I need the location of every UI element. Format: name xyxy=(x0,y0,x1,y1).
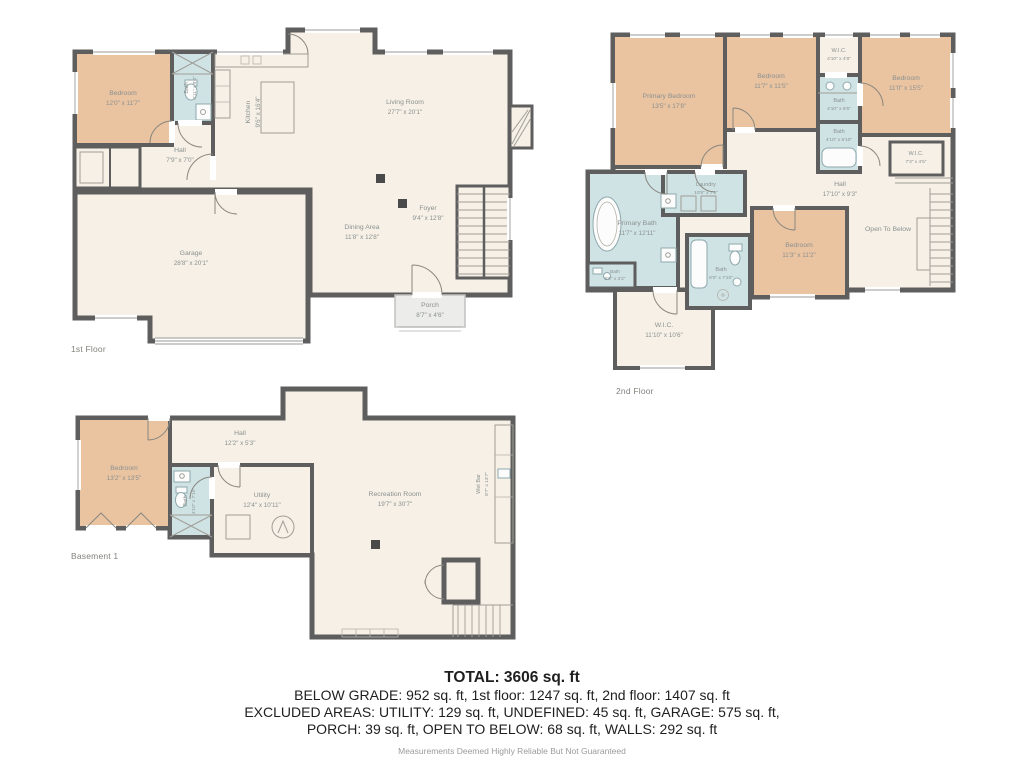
room-dims: 9'4" x 12'8" xyxy=(412,215,443,222)
room-dims: 11'7" x 12'11" xyxy=(618,230,655,237)
room-bath-small-second xyxy=(588,263,635,288)
room-dims: 5'6" x 3'2" xyxy=(605,276,626,282)
room-dims: 12'2" x 5'3" xyxy=(224,440,255,447)
room-label: W.I.C. xyxy=(655,322,674,329)
room-label: Utility xyxy=(254,492,271,499)
room-label: Hall xyxy=(234,430,246,437)
room-label: Laundry xyxy=(696,182,716,188)
area-line-excluded-2: PORCH: 39 sq. ft, OPEN TO BELOW: 68 sq. … xyxy=(0,721,1024,738)
first-floor-label: 1st Floor xyxy=(71,344,106,354)
area-summary: TOTAL: 3606 sq. ft BELOW GRADE: 952 sq. … xyxy=(0,668,1024,756)
room-bedroom-basement xyxy=(78,418,170,528)
support-post xyxy=(371,540,380,549)
room-dims: 4'10" x 5'10" xyxy=(826,137,853,143)
room-label: Primary Bedroom xyxy=(643,93,696,100)
room-dims: 12'4" x 10'11" xyxy=(243,502,281,509)
room-label: Living Room xyxy=(386,99,424,106)
room-label: Recreation Room xyxy=(369,491,422,498)
room-label: Bath xyxy=(833,98,844,104)
hall-closet-first xyxy=(75,147,140,188)
room-label: Kitchen xyxy=(245,100,252,123)
room-dims: 11'8" x 12'8" xyxy=(345,234,379,241)
room-label: Open To Below xyxy=(865,226,911,233)
room-label: Bath xyxy=(610,269,620,275)
rec-room-closet xyxy=(444,560,478,602)
room-dims: 10'8" x 7'6" xyxy=(694,190,718,196)
room-dims: 11'10" x 10'6" xyxy=(645,332,683,339)
support-post xyxy=(398,199,407,208)
room-dims: 9'6" x 16'4" xyxy=(255,96,262,127)
area-line-grades: BELOW GRADE: 952 sq. ft, 1st floor: 1247… xyxy=(0,687,1024,704)
room-dims: 8'7" x 13'7" xyxy=(484,472,490,496)
room-label: Bedroom xyxy=(785,242,813,249)
room-label: Wet Bar xyxy=(476,474,482,494)
basement-plan: Bedroom 13'2" x 13'5" Hall 12'2" x 5'3" … xyxy=(68,385,523,660)
room-dims: 4'10" x 4'8" xyxy=(827,56,851,62)
room-primary-bedroom xyxy=(613,35,725,167)
room-label: W.I.C. xyxy=(909,151,924,157)
room-dims: 19'7" x 30'7" xyxy=(378,501,413,508)
first-floor-plan: Bedroom 12'0" x 11'7" Bath 4'11" x 9'0" … xyxy=(65,26,540,361)
room-label: Bath xyxy=(833,129,844,135)
room-label: W.I.C. xyxy=(832,48,847,54)
room-dims: 27'7" x 20'1" xyxy=(388,109,423,116)
room-dims: 12'0" x 11'7" xyxy=(106,100,140,107)
basement-floor-label: Basement 1 xyxy=(71,551,118,561)
room-label: Dining Area xyxy=(344,224,379,231)
room-dims: 13'2" x 13'5" xyxy=(107,475,142,482)
room-label: Primary Bath xyxy=(617,220,657,227)
room-label: Bedroom xyxy=(892,75,920,82)
room-utility xyxy=(212,465,312,555)
fireplace xyxy=(510,106,532,148)
disclaimer-text: Measurements Deemed Highly Reliable But … xyxy=(0,746,1024,756)
room-label: Hall xyxy=(834,181,846,188)
room-porch-first xyxy=(395,295,465,327)
room-dims: 11'3" x 11'2" xyxy=(782,252,816,259)
room-dims: 11'0" x 15'5" xyxy=(889,85,923,92)
room-label: Bedroom xyxy=(109,90,137,97)
room-label: Bath xyxy=(715,267,726,273)
room-dims: 17'10" x 9'3" xyxy=(823,191,858,198)
room-dims: 4'10" x 5'6" xyxy=(827,106,851,112)
area-line-excluded-1: EXCLUDED AREAS: UTILITY: 129 sq. ft, UND… xyxy=(0,704,1024,721)
room-dims: 13'5" x 17'8" xyxy=(652,103,687,110)
room-dims: 8'7" x 4'6" xyxy=(416,312,444,319)
room-bedroom-first xyxy=(75,52,172,145)
room-dims: 8'0" x 7'10" xyxy=(709,275,733,281)
room-dims: 11'7" x 11'5" xyxy=(754,83,788,90)
total-area: TOTAL: 3606 sq. ft xyxy=(0,668,1024,687)
room-dims: 4'10" x 7'10" xyxy=(191,488,197,515)
room-label: Bedroom xyxy=(110,465,138,472)
room-label: Porch xyxy=(421,302,439,309)
room-label: Bath xyxy=(184,82,190,93)
room-dims: 4'11" x 9'0" xyxy=(192,76,198,100)
room-dims: 7'3" x 4'5" xyxy=(906,159,927,165)
support-post xyxy=(376,174,385,183)
room-label: Foyer xyxy=(419,205,437,212)
room-label: Garage xyxy=(180,250,203,257)
room-dims: 28'8" x 20'1" xyxy=(174,260,209,267)
second-floor-label: 2nd Floor xyxy=(616,386,654,396)
second-floor-plan: Primary Bedroom 13'5" x 17'8" Bedroom 11… xyxy=(585,28,975,383)
room-label: Hall xyxy=(174,147,186,154)
floorplan-page: Bedroom 12'0" x 11'7" Bath 4'11" x 9'0" … xyxy=(0,0,1024,768)
stairs-first xyxy=(457,186,510,278)
room-label: Bath xyxy=(183,495,189,506)
room-dims: 7'9" x 7'0" xyxy=(166,157,194,164)
room-label: Bedroom xyxy=(757,73,785,80)
room-wic-right-second xyxy=(890,142,943,175)
room-wic-top-second xyxy=(818,35,860,75)
